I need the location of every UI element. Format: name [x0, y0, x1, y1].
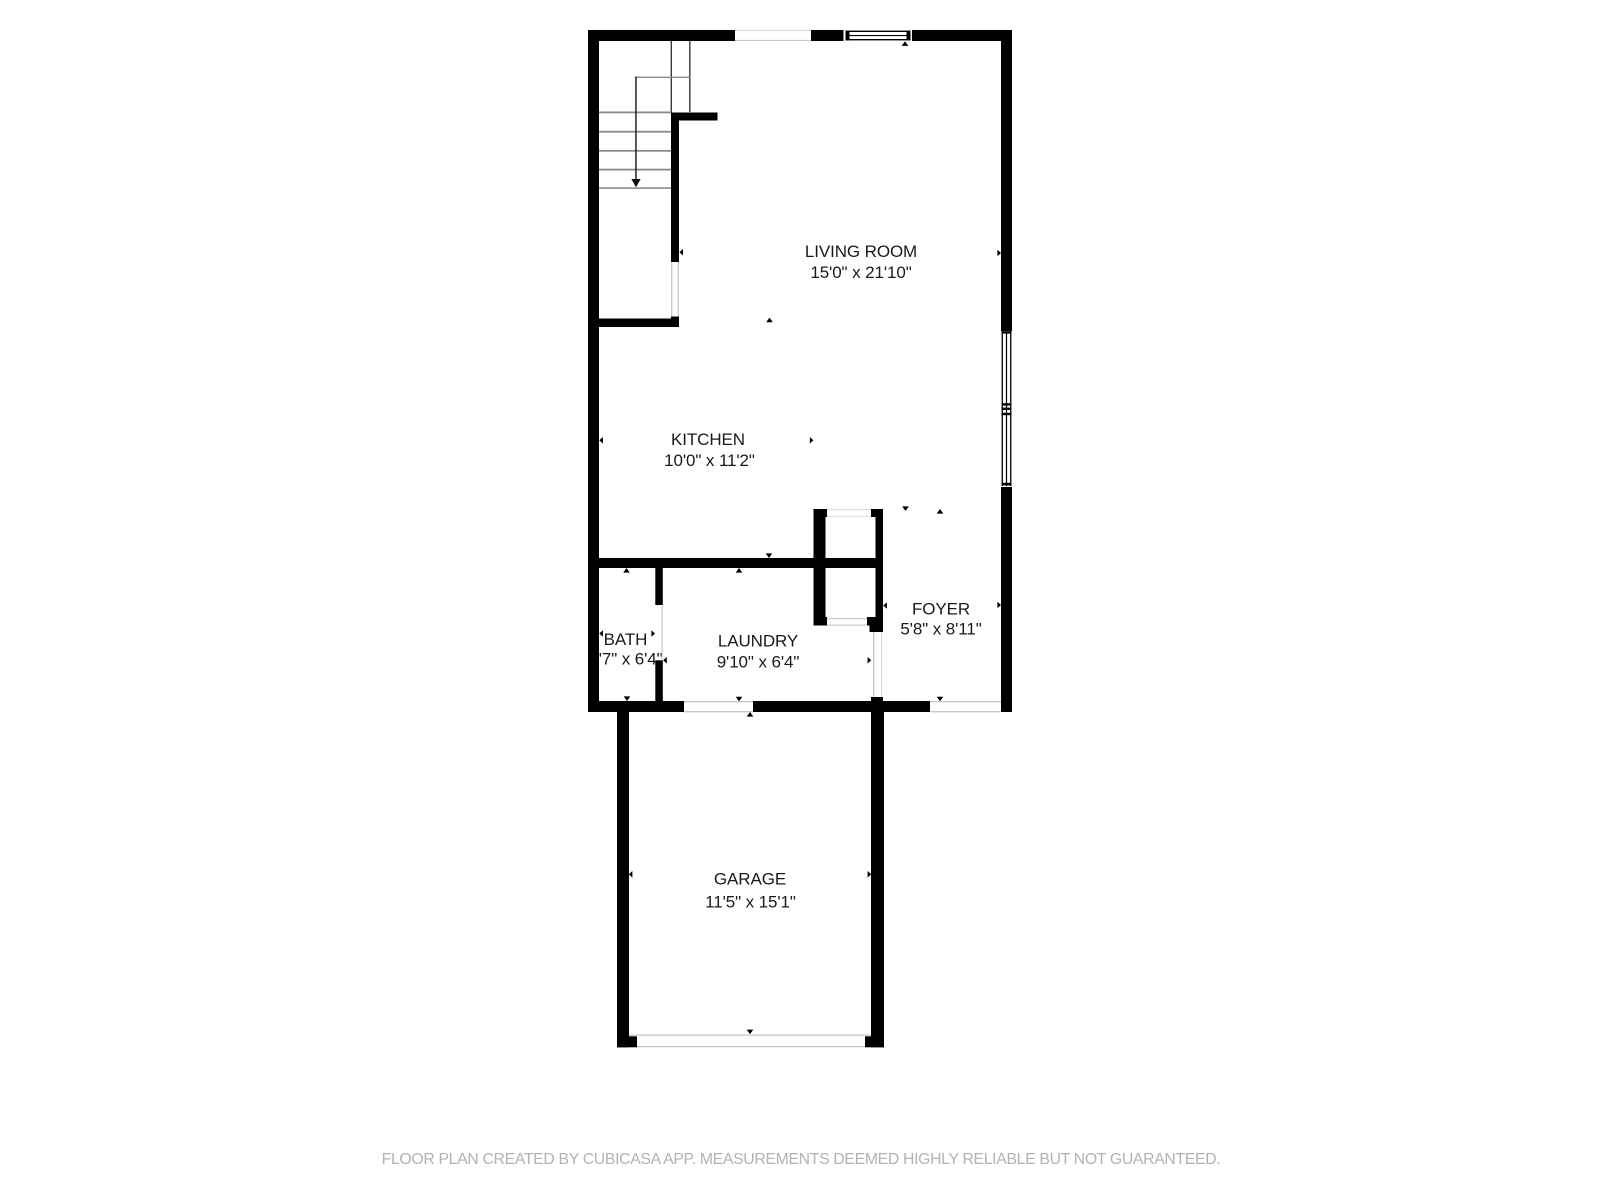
- svg-text:9'10" x 6'4": 9'10" x 6'4": [717, 652, 800, 671]
- svg-text:KITCHEN: KITCHEN: [671, 430, 745, 449]
- svg-text:5'8" x 8'11": 5'8" x 8'11": [900, 620, 981, 639]
- svg-text:BATH: BATH: [604, 630, 648, 649]
- svg-text:11'5" x 15'1": 11'5" x 15'1": [705, 892, 796, 911]
- svg-text:GARAGE: GARAGE: [714, 870, 786, 889]
- svg-text:FLOOR PLAN CREATED BY CUBICASA: FLOOR PLAN CREATED BY CUBICASA APP. MEAS…: [382, 1151, 1221, 1168]
- svg-text:LAUNDRY: LAUNDRY: [718, 632, 798, 651]
- svg-text:LIVING ROOM: LIVING ROOM: [805, 242, 917, 261]
- svg-text:FOYER: FOYER: [912, 600, 970, 619]
- svg-text:15'0" x 21'10": 15'0" x 21'10": [810, 263, 911, 282]
- svg-text:10'0" x 11'2": 10'0" x 11'2": [664, 451, 755, 470]
- svg-text:5'7" x 6'4": 5'7" x 6'4": [589, 650, 662, 669]
